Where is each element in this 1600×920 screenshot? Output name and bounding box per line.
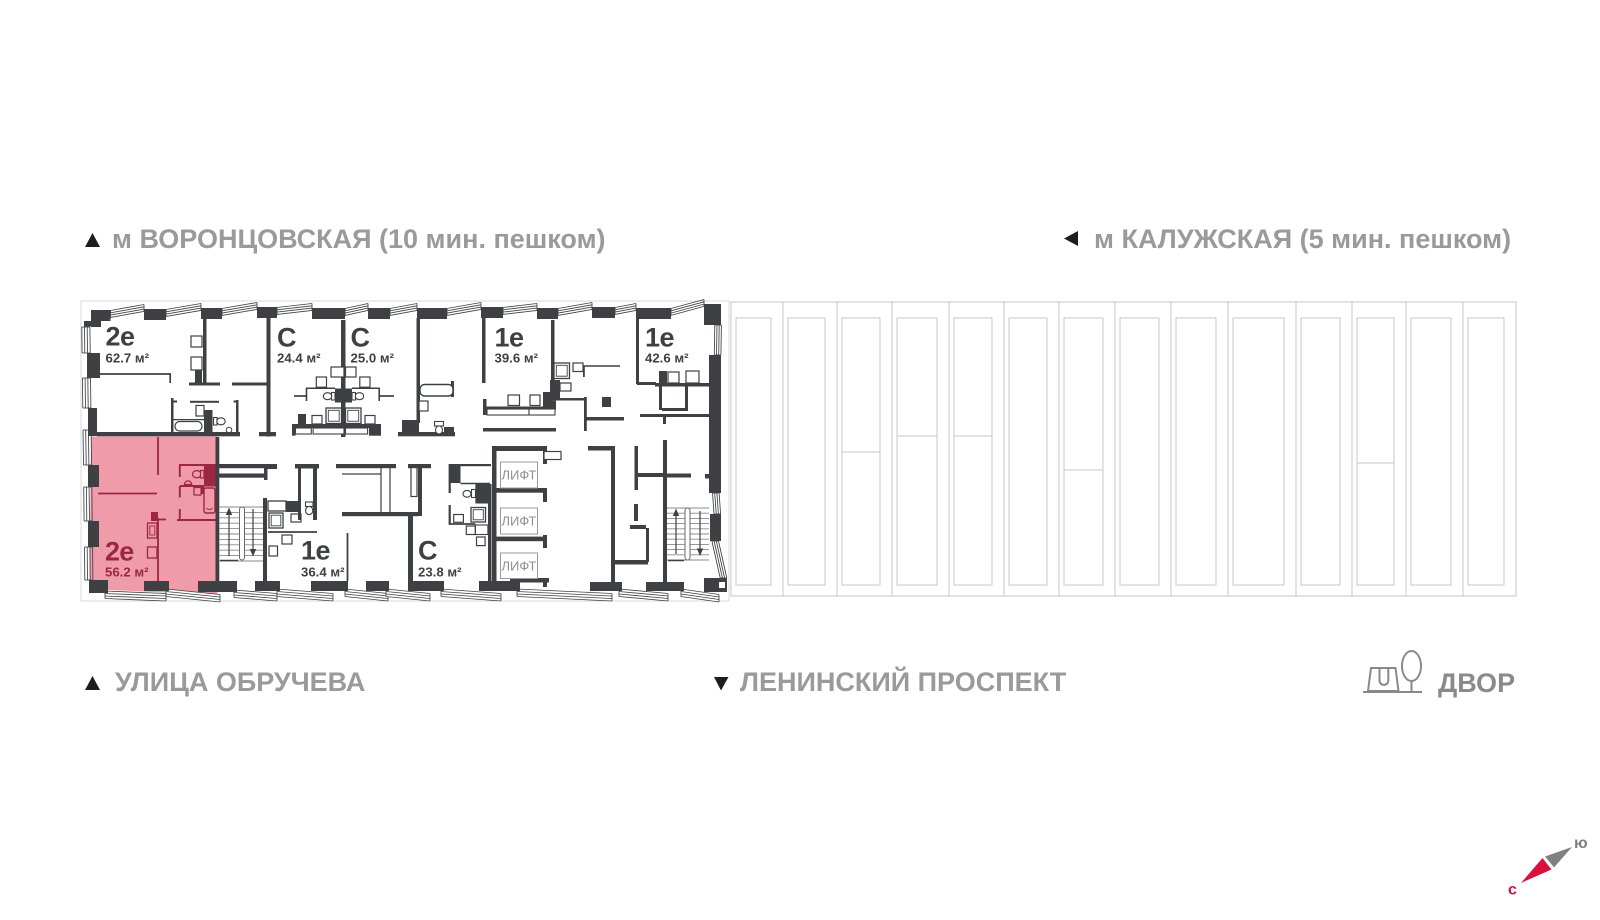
svg-text:1е: 1е	[645, 323, 675, 353]
svg-text:1е: 1е	[495, 323, 525, 353]
svg-text:1е: 1е	[301, 536, 331, 566]
svg-text:УЛИЦА ОБРУЧЕВА: УЛИЦА ОБРУЧЕВА	[115, 667, 365, 697]
svg-text:42.6 м²: 42.6 м²	[645, 351, 689, 366]
svg-text:с: с	[1508, 882, 1517, 899]
svg-text:2е: 2е	[105, 537, 134, 567]
svg-text:62.7 м²: 62.7 м²	[106, 351, 150, 366]
svg-text:м КАЛУЖСКАЯ (5 мин. пешком): м КАЛУЖСКАЯ (5 мин. пешком)	[1094, 224, 1511, 254]
svg-text:С: С	[418, 536, 438, 566]
svg-text:36.4 м²: 36.4 м²	[301, 565, 345, 580]
svg-text:39.6 м²: 39.6 м²	[495, 351, 539, 366]
svg-text:25.0 м²: 25.0 м²	[351, 351, 395, 366]
svg-text:С: С	[277, 323, 297, 353]
svg-text:ЛЕНИНСКИЙ ПРОСПЕКТ: ЛЕНИНСКИЙ ПРОСПЕКТ	[740, 666, 1067, 697]
svg-text:ЛИФТ: ЛИФТ	[502, 558, 537, 573]
svg-text:С: С	[351, 323, 371, 353]
svg-text:ЛИФТ: ЛИФТ	[502, 468, 537, 483]
svg-text:ю: ю	[1574, 835, 1588, 852]
svg-text:23.8 м²: 23.8 м²	[418, 565, 462, 580]
svg-text:2е: 2е	[106, 322, 136, 352]
svg-text:24.4 м²: 24.4 м²	[277, 351, 321, 366]
svg-text:ЛИФТ: ЛИФТ	[502, 514, 537, 529]
svg-text:м ВОРОНЦОВСКАЯ (10 мин. пешко: м ВОРОНЦОВСКАЯ (10 мин. пешком)	[112, 224, 606, 254]
svg-text:ДВОР: ДВОР	[1438, 668, 1515, 698]
svg-text:56.2 м²: 56.2 м²	[105, 565, 149, 580]
